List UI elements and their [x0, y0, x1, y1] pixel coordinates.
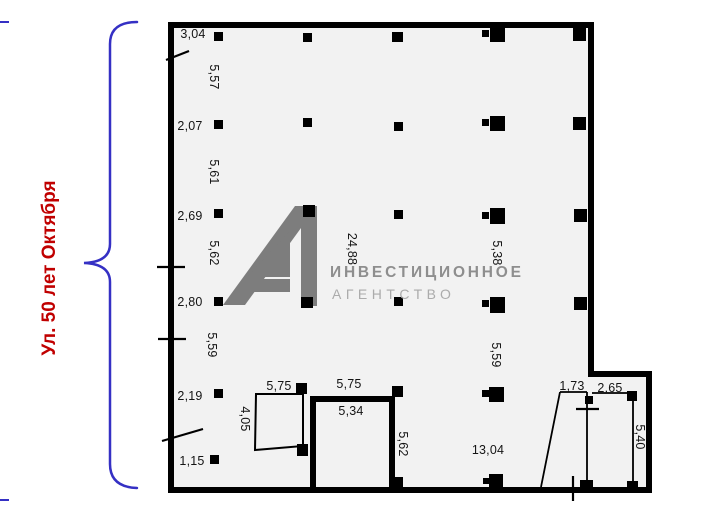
dimension-label: 2,07 [177, 119, 202, 133]
dimension-label: 5,61 [207, 159, 221, 184]
dimension-label: 2,69 [177, 209, 202, 223]
dimension-label: 2,65 [597, 381, 622, 395]
dimension-label: 1,15 [179, 454, 204, 468]
watermark-agency-name: ИНВЕСТИЦИОННОЕ [330, 264, 524, 282]
dimension-label: 2,80 [177, 295, 202, 309]
dimension-label: 5,38 [490, 240, 504, 265]
dimension-label: 3,04 [180, 27, 205, 41]
dimension-label: 5,62 [207, 240, 221, 265]
watermark-agency-type: АГЕНТСТВО [332, 286, 455, 302]
dimension-label: 5,75 [336, 377, 361, 391]
dimension-label: 5,40 [633, 424, 647, 449]
dimension-label: 5,57 [207, 64, 221, 89]
dimension-label: 5,34 [338, 404, 363, 418]
dimension-label: 13,04 [472, 443, 504, 457]
dimension-label: 2,19 [177, 389, 202, 403]
dimension-label: 4,05 [238, 406, 252, 431]
floor-plan-drawing [0, 0, 727, 506]
street-bracket [84, 22, 137, 488]
dimension-label: 5,75 [266, 379, 291, 393]
dimension-label: 5,59 [205, 332, 219, 357]
dimension-label: 1,73 [559, 379, 584, 393]
dimension-label: 5,59 [489, 342, 503, 367]
street-name-label: Ул. 50 лет Октября [39, 180, 61, 355]
dimension-label: 24,88 [345, 233, 359, 265]
dimension-label: 5,62 [396, 431, 410, 456]
floor-plan-page: Ул. 50 лет Октября ИНВЕСТИЦИОННОЕ АГЕНТС… [0, 0, 727, 506]
